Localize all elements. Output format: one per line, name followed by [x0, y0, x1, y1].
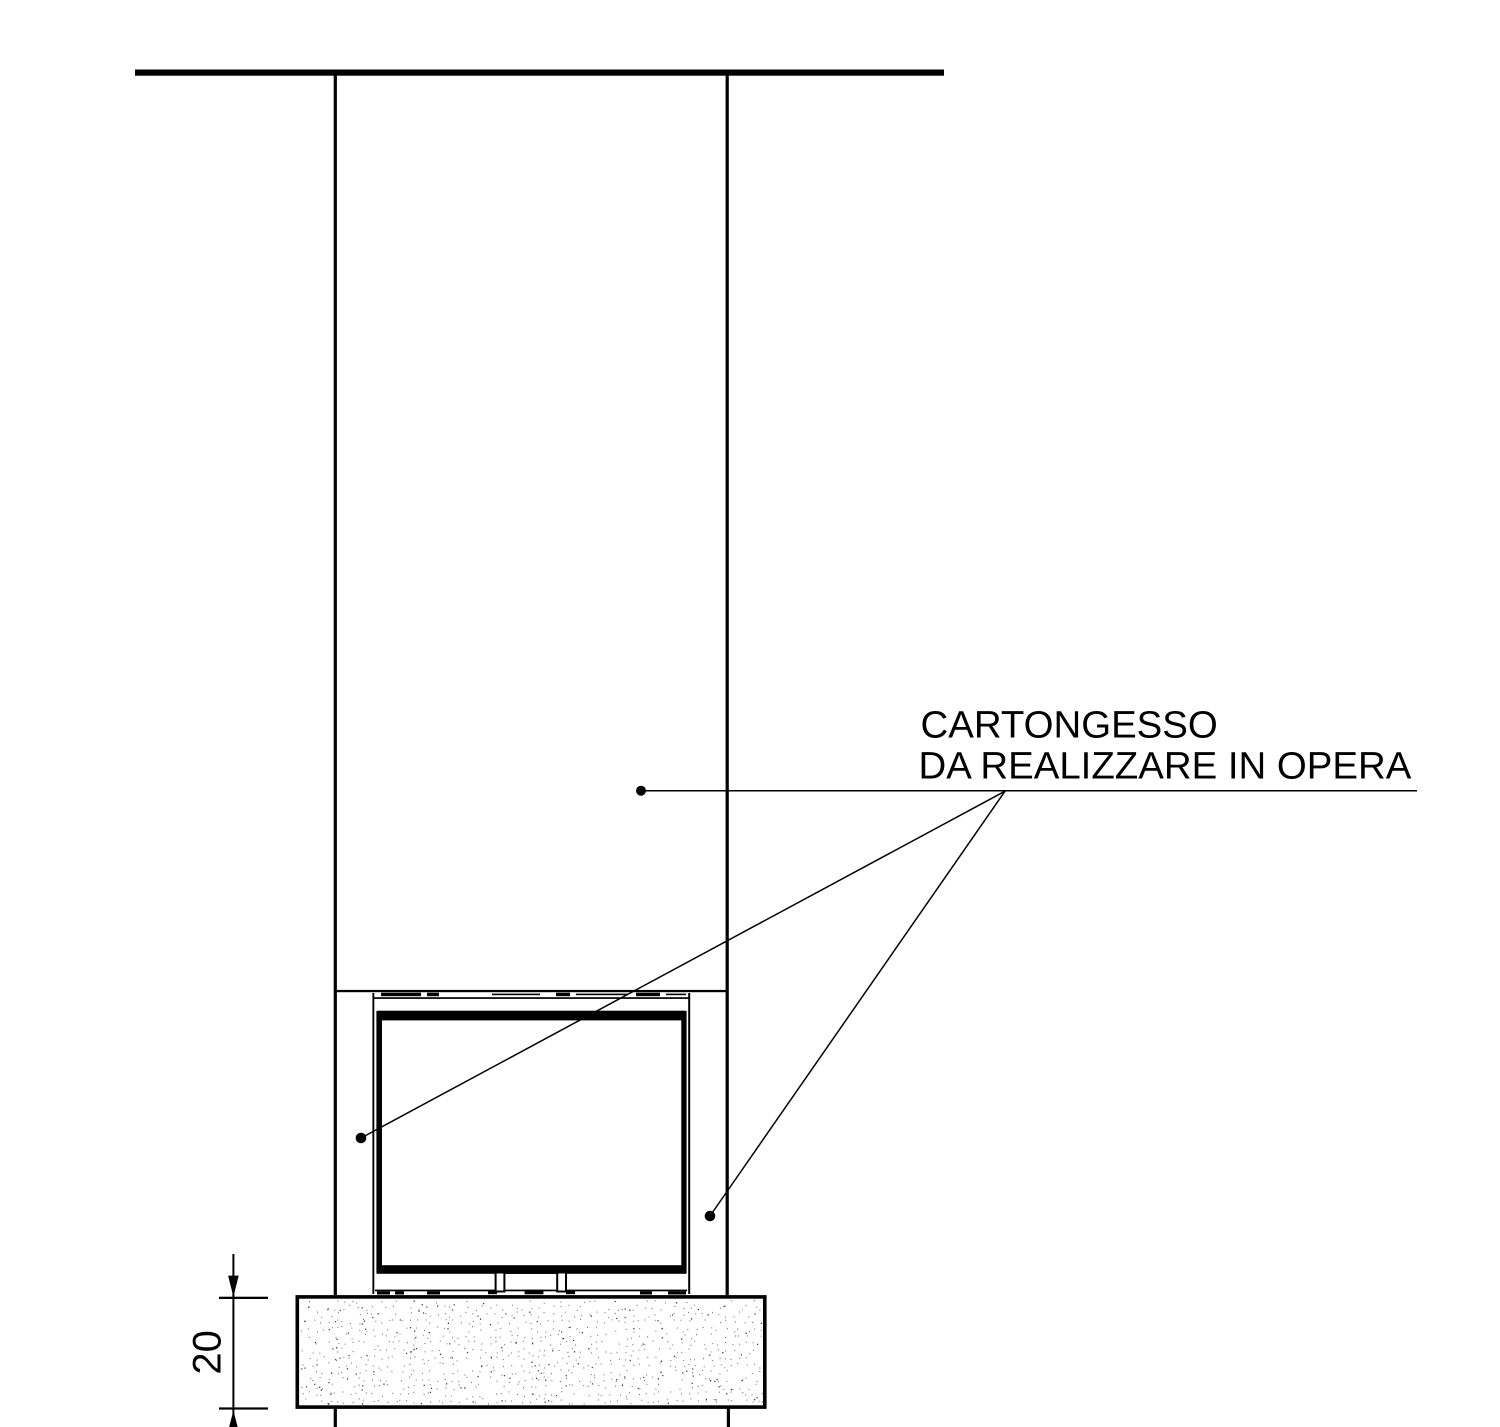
svg-text:CARTONGESSO: CARTONGESSO [921, 703, 1218, 746]
svg-text:DA REALIZZARE IN OPERA: DA REALIZZARE IN OPERA [919, 744, 1412, 787]
svg-text:20: 20 [186, 1330, 230, 1375]
